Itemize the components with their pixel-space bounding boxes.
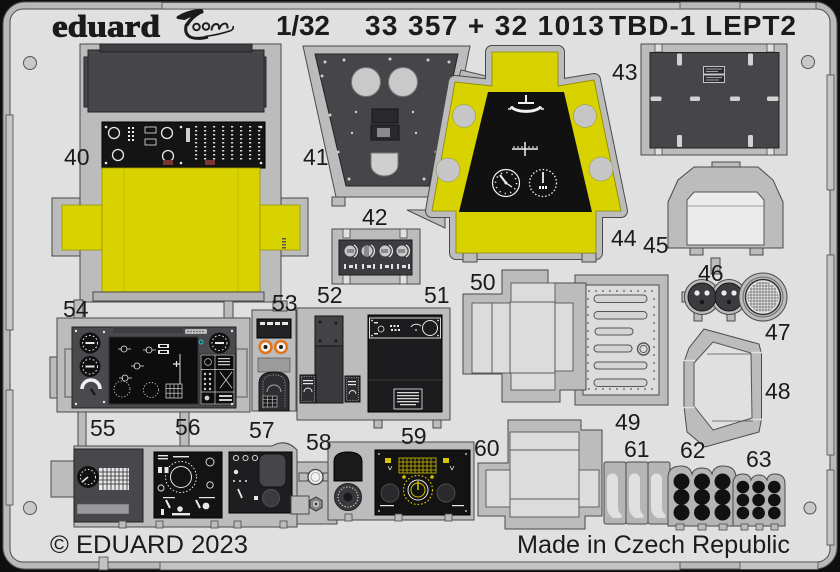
svg-text:59: 59 — [401, 423, 427, 449]
svg-text:57: 57 — [249, 417, 275, 443]
svg-text:54: 54 — [63, 296, 89, 322]
svg-text:eduard: eduard — [52, 9, 160, 44]
svg-text:53: 53 — [272, 290, 298, 316]
svg-text:48: 48 — [765, 378, 791, 404]
svg-text:51: 51 — [424, 282, 450, 308]
svg-text:41: 41 — [303, 144, 329, 170]
svg-text:40: 40 — [64, 144, 90, 170]
svg-text:60: 60 — [474, 435, 500, 461]
svg-text:43: 43 — [612, 59, 638, 85]
svg-text:55: 55 — [90, 415, 116, 441]
svg-text:© EDUARD 2023: © EDUARD 2023 — [50, 531, 248, 559]
svg-text:49: 49 — [615, 409, 641, 435]
svg-text:42: 42 — [362, 204, 388, 230]
svg-text:TBD-1 LEPT2: TBD-1 LEPT2 — [609, 10, 796, 41]
svg-text:1/32: 1/32 — [276, 10, 330, 41]
svg-text:44: 44 — [611, 225, 637, 251]
svg-text:45: 45 — [643, 232, 669, 258]
svg-text:61: 61 — [624, 436, 650, 462]
svg-text:50: 50 — [470, 269, 496, 295]
svg-text:58: 58 — [306, 429, 332, 455]
svg-text:62: 62 — [680, 437, 706, 463]
svg-text:52: 52 — [317, 282, 343, 308]
svg-text:56: 56 — [175, 414, 201, 440]
svg-text:46: 46 — [698, 260, 724, 286]
svg-text:63: 63 — [746, 446, 772, 472]
svg-text:47: 47 — [765, 319, 791, 345]
svg-text:Made in Czech Republic: Made in Czech Republic — [517, 531, 790, 559]
